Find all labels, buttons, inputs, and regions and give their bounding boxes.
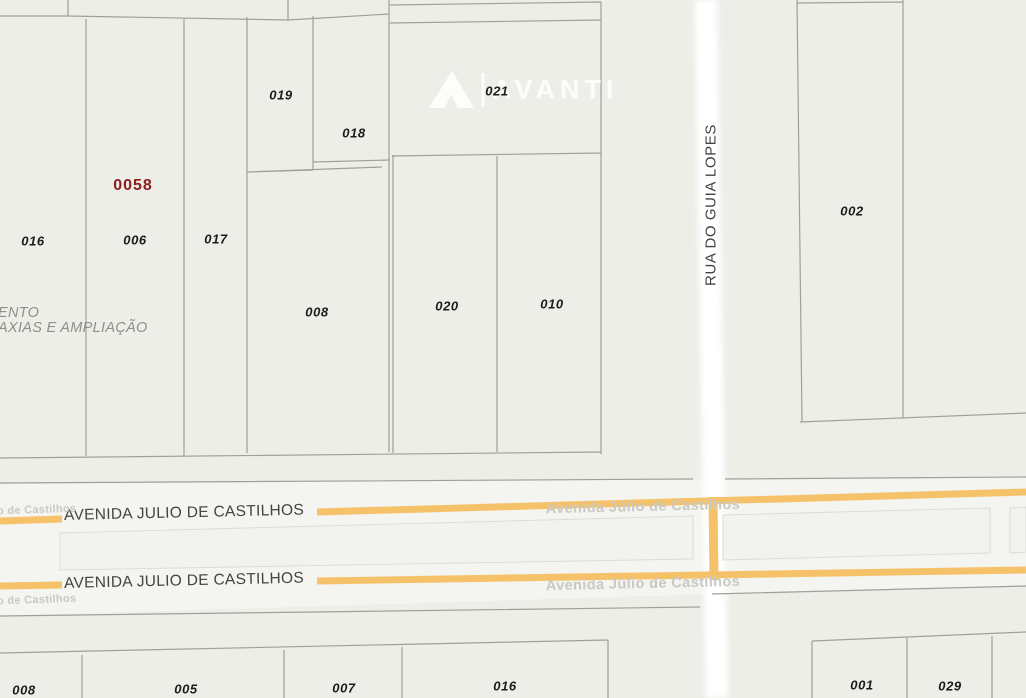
lot-label-019: 019 bbox=[269, 88, 293, 103]
avanti-watermark-text: AVANTI bbox=[492, 75, 619, 106]
street-label-rua-do-guia-lopes: RUA DO GUIA LOPES bbox=[703, 124, 720, 286]
lot-label-016: 016 bbox=[21, 234, 45, 249]
lot-label-006: 006 bbox=[123, 233, 147, 248]
lot-label-008: 008 bbox=[12, 683, 36, 698]
cadastral-map-viewport[interactable]: AVANTI 019018021005801600601700802001000… bbox=[0, 0, 1026, 698]
lot-label-020: 020 bbox=[435, 299, 459, 314]
annotation-text-line1: ENTO bbox=[0, 305, 39, 321]
avanti-logo-icon bbox=[429, 71, 485, 108]
lot-label-010: 010 bbox=[540, 297, 564, 312]
lot-label-001: 001 bbox=[850, 678, 874, 693]
lot-label-002: 002 bbox=[840, 204, 864, 219]
lot-label-016: 016 bbox=[493, 679, 517, 694]
lot-label-0058: 0058 bbox=[113, 177, 153, 195]
lot-label-005: 005 bbox=[174, 682, 198, 697]
lot-label-007: 007 bbox=[332, 681, 356, 696]
lot-label-021: 021 bbox=[485, 84, 509, 99]
annotation-text-line2: AXIAS E AMPLIAÇÃO bbox=[0, 320, 148, 336]
lot-label-017: 017 bbox=[204, 232, 228, 247]
lot-label-018: 018 bbox=[342, 126, 366, 141]
lot-label-008: 008 bbox=[305, 305, 329, 320]
lot-label-029: 029 bbox=[938, 679, 962, 694]
